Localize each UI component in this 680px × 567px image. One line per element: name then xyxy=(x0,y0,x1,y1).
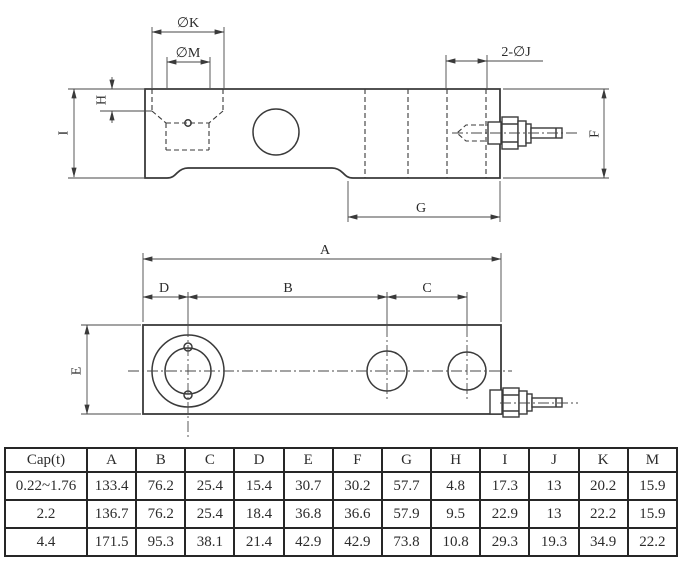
dimension-value-cell: 29.3 xyxy=(480,528,529,556)
dimension-value-cell: 36.6 xyxy=(333,500,382,528)
dim-label-f: F xyxy=(588,130,603,138)
plan-center-lines xyxy=(128,326,512,437)
table-header-cell: B xyxy=(136,448,185,472)
dimension-h: H xyxy=(68,77,152,123)
dim-label-h: H xyxy=(95,95,110,105)
dimension-2j: 2-∅J xyxy=(446,45,543,88)
side-view-drawing: ∅K ∅M H I xyxy=(57,16,610,222)
dim-label-b: B xyxy=(283,281,292,296)
dimension-value-cell: 133.4 xyxy=(87,472,136,500)
dimension-value-cell: 15.9 xyxy=(628,472,677,500)
cable-connector-side xyxy=(452,117,580,149)
table-header-cell: G xyxy=(382,448,431,472)
dimension-value-cell: 22.2 xyxy=(579,500,628,528)
table-header-cell: A xyxy=(87,448,136,472)
plan-view-body-outline xyxy=(143,325,501,414)
dimension-value-cell: 13 xyxy=(529,500,578,528)
dimension-value-cell: 34.9 xyxy=(579,528,628,556)
table-row: 0.22~1.76133.476.225.415.430.730.257.74.… xyxy=(5,472,677,500)
capacity-cell: 4.4 xyxy=(5,528,87,556)
dimension-g: G xyxy=(348,181,500,222)
dimension-value-cell: 30.2 xyxy=(333,472,382,500)
table-header-cell: K xyxy=(579,448,628,472)
table-row: 4.4171.595.338.121.442.942.973.810.829.3… xyxy=(5,528,677,556)
table-header-cell: C xyxy=(185,448,234,472)
dimension-value-cell: 13 xyxy=(529,472,578,500)
technical-drawing: ∅K ∅M H I xyxy=(0,0,680,447)
dim-label-2j: 2-∅J xyxy=(501,45,531,60)
center-hole-side xyxy=(253,109,299,155)
dimension-value-cell: 136.7 xyxy=(87,500,136,528)
table-header-cell: E xyxy=(284,448,333,472)
cable-connector-plan xyxy=(490,388,578,417)
table-header-cell: F xyxy=(333,448,382,472)
plan-view-drawing: A D B C E xyxy=(70,243,579,437)
dimension-value-cell: 57.9 xyxy=(382,500,431,528)
table-header-cell: Cap(t) xyxy=(5,448,87,472)
dimension-m: ∅M xyxy=(167,46,210,88)
table-row: 2.2136.776.225.418.436.836.657.99.522.91… xyxy=(5,500,677,528)
dimension-value-cell: 15.9 xyxy=(628,500,677,528)
table-header-cell: H xyxy=(431,448,480,472)
dimension-value-cell: 22.2 xyxy=(628,528,677,556)
dimension-value-cell: 15.4 xyxy=(234,472,283,500)
dim-label-c: C xyxy=(422,281,431,296)
table-header-cell: J xyxy=(529,448,578,472)
dimension-dbc: D B C xyxy=(143,281,467,324)
load-cell-datasheet: ∅K ∅M H I xyxy=(0,0,680,567)
dimension-table: Cap(t)ABCDEFGHIJKM 0.22~1.76133.476.225.… xyxy=(4,447,678,557)
dimension-value-cell: 18.4 xyxy=(234,500,283,528)
dimension-value-cell: 171.5 xyxy=(87,528,136,556)
dimension-value-cell: 36.8 xyxy=(284,500,333,528)
dimension-value-cell: 42.9 xyxy=(333,528,382,556)
dim-label-i: I xyxy=(57,130,72,135)
dimension-value-cell: 19.3 xyxy=(529,528,578,556)
table-header-cell: D xyxy=(234,448,283,472)
dimension-value-cell: 21.4 xyxy=(234,528,283,556)
dimension-value-cell: 76.2 xyxy=(136,500,185,528)
dimension-value-cell: 42.9 xyxy=(284,528,333,556)
dim-label-g: G xyxy=(416,201,426,216)
dimension-e: E xyxy=(70,325,142,414)
dimension-value-cell: 57.7 xyxy=(382,472,431,500)
dimension-a: A xyxy=(143,243,501,322)
bolt-holes-hidden-lines xyxy=(365,89,486,178)
dimension-value-cell: 17.3 xyxy=(480,472,529,500)
dimension-value-cell: 20.2 xyxy=(579,472,628,500)
dimension-value-cell: 22.9 xyxy=(480,500,529,528)
table-header-cell: M xyxy=(628,448,677,472)
dimension-value-cell: 95.3 xyxy=(136,528,185,556)
dim-label-a: A xyxy=(320,243,331,258)
dimension-value-cell: 4.8 xyxy=(431,472,480,500)
dim-label-k: ∅K xyxy=(177,16,199,31)
dimension-value-cell: 10.8 xyxy=(431,528,480,556)
table-header-cell: I xyxy=(480,448,529,472)
dim-label-e: E xyxy=(70,367,85,376)
dimension-value-cell: 73.8 xyxy=(382,528,431,556)
dimension-value-cell: 25.4 xyxy=(185,500,234,528)
table-header-row: Cap(t)ABCDEFGHIJKM xyxy=(5,448,677,472)
dimension-value-cell: 38.1 xyxy=(185,528,234,556)
dimension-value-cell: 25.4 xyxy=(185,472,234,500)
dimension-value-cell: 30.7 xyxy=(284,472,333,500)
counterbore-hidden-lines xyxy=(152,89,223,150)
dimension-value-cell: 76.2 xyxy=(136,472,185,500)
dim-label-d: D xyxy=(159,281,169,296)
capacity-cell: 2.2 xyxy=(5,500,87,528)
dim-label-m: ∅M xyxy=(176,46,201,61)
dimension-value-cell: 9.5 xyxy=(431,500,480,528)
capacity-cell: 0.22~1.76 xyxy=(5,472,87,500)
